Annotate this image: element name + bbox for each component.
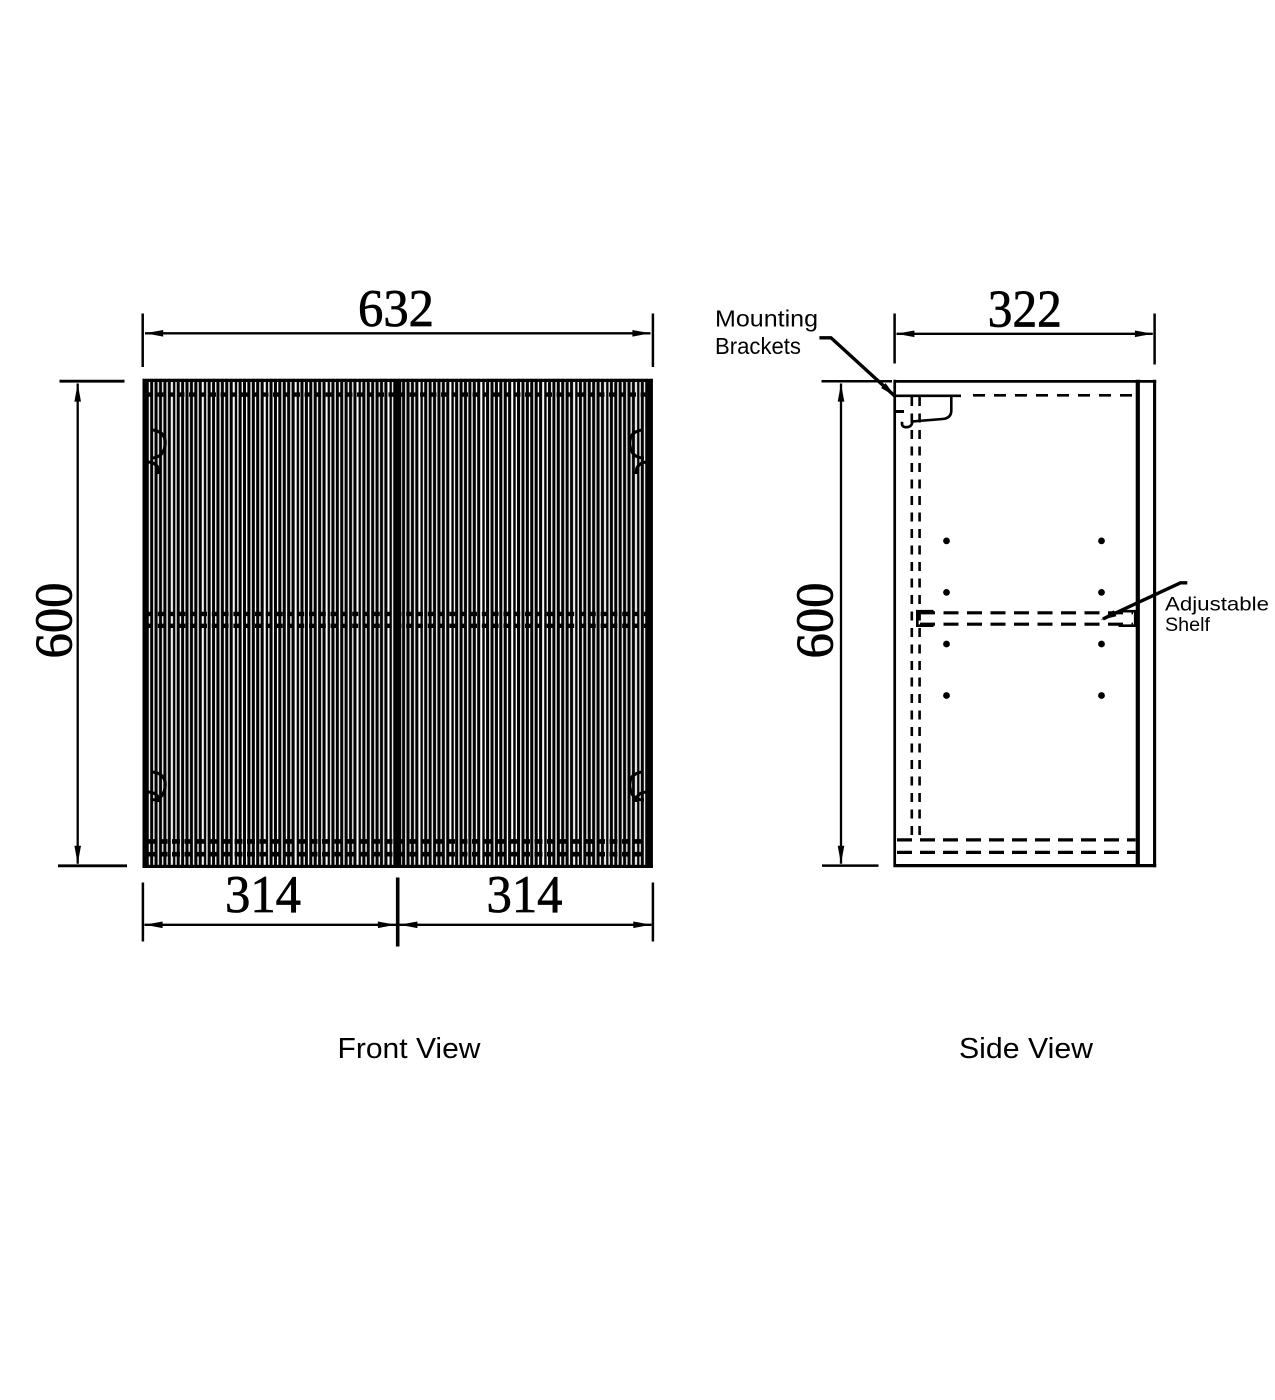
svg-text:632: 632	[358, 280, 434, 338]
svg-text:600: 600	[787, 583, 845, 659]
svg-text:Shelf: Shelf	[1165, 614, 1211, 636]
svg-text:314: 314	[487, 866, 563, 924]
svg-text:Adjustable: Adjustable	[1165, 594, 1269, 616]
svg-text:Front View: Front View	[338, 1033, 482, 1065]
svg-text:Brackets: Brackets	[715, 333, 801, 359]
svg-text:Mounting: Mounting	[715, 306, 818, 332]
svg-text:Side View: Side View	[959, 1033, 1094, 1065]
svg-text:314: 314	[225, 866, 301, 924]
svg-text:600: 600	[26, 583, 84, 659]
svg-text:322: 322	[988, 280, 1062, 338]
